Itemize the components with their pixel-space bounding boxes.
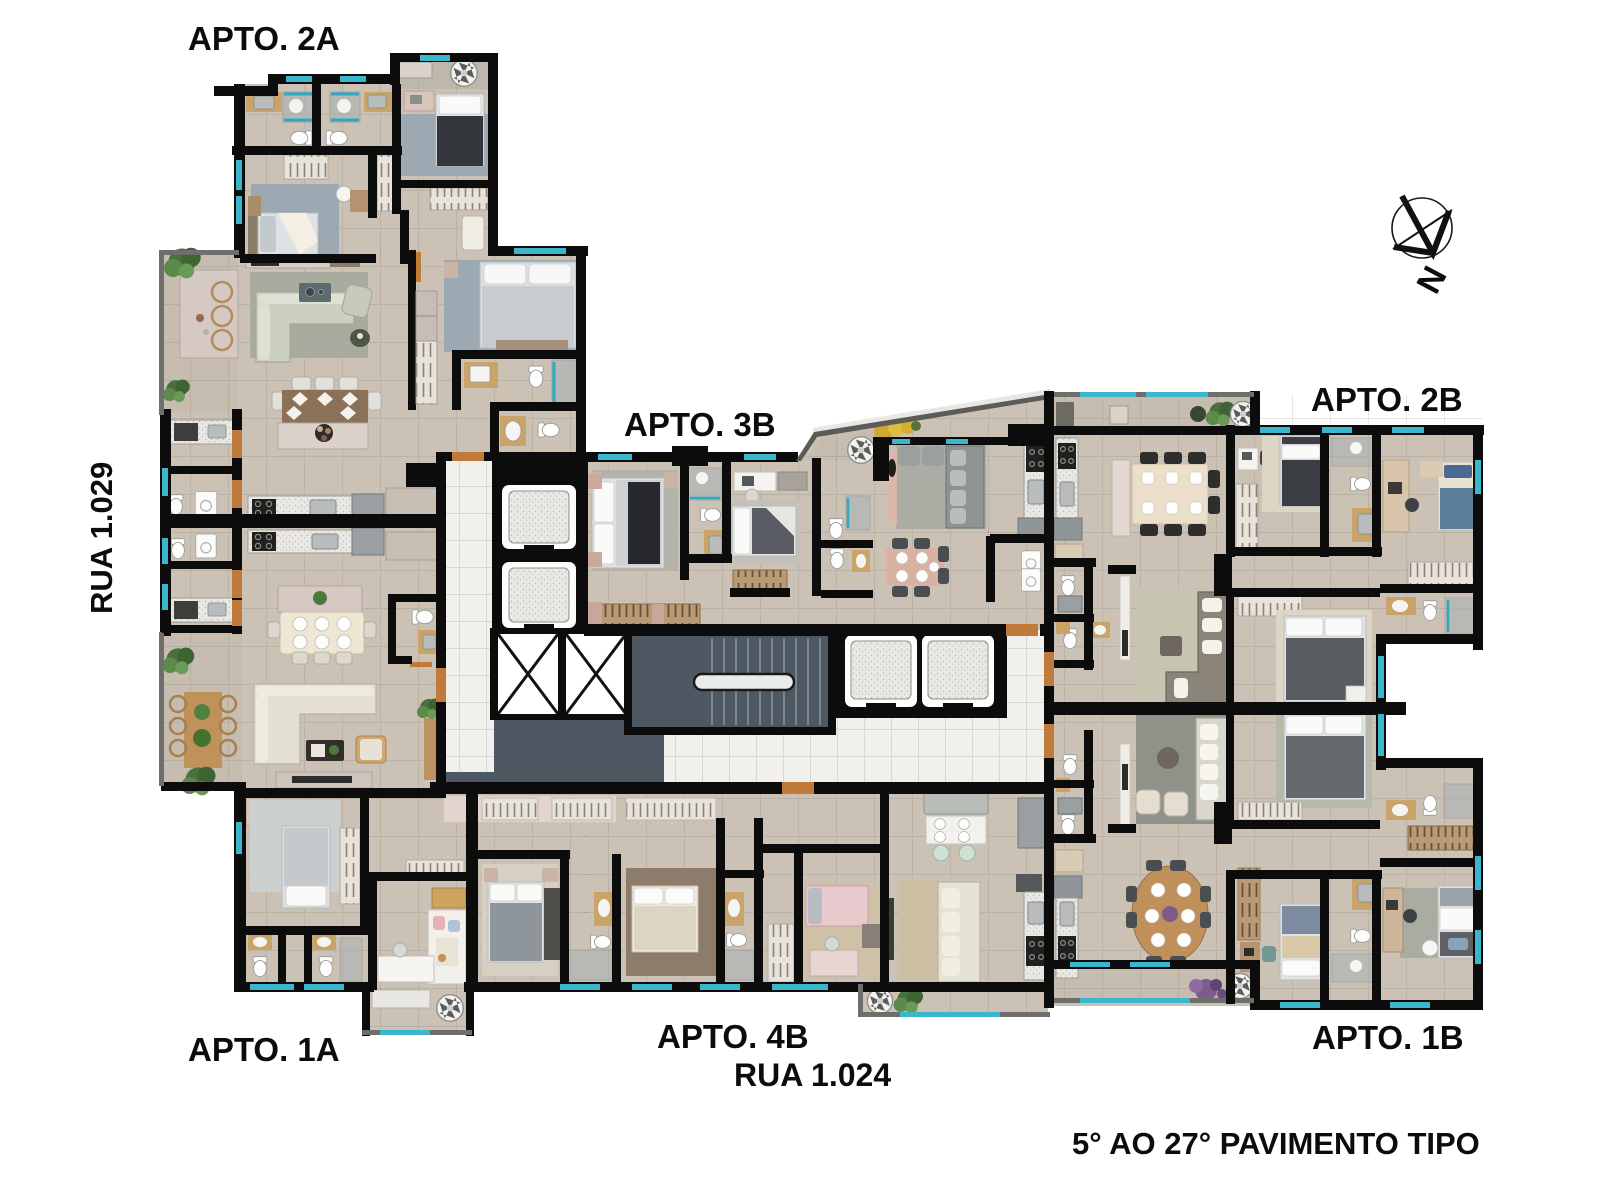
svg-text:APTO. 2B: APTO. 2B — [1311, 381, 1463, 418]
svg-text:APTO. 2A: APTO. 2A — [188, 20, 340, 57]
svg-text:APTO. 1A: APTO. 1A — [188, 1031, 340, 1068]
svg-text:APTO. 4B: APTO. 4B — [657, 1018, 809, 1055]
svg-text:RUA 1.024: RUA 1.024 — [734, 1057, 891, 1093]
svg-text:5° AO 27° PAVIMENTO TIPO: 5° AO 27° PAVIMENTO TIPO — [1072, 1126, 1480, 1161]
svg-text:APTO. 1B: APTO. 1B — [1312, 1019, 1464, 1056]
svg-text:RUA 1.029: RUA 1.029 — [84, 462, 119, 614]
svg-text:APTO. 3B: APTO. 3B — [624, 406, 776, 443]
